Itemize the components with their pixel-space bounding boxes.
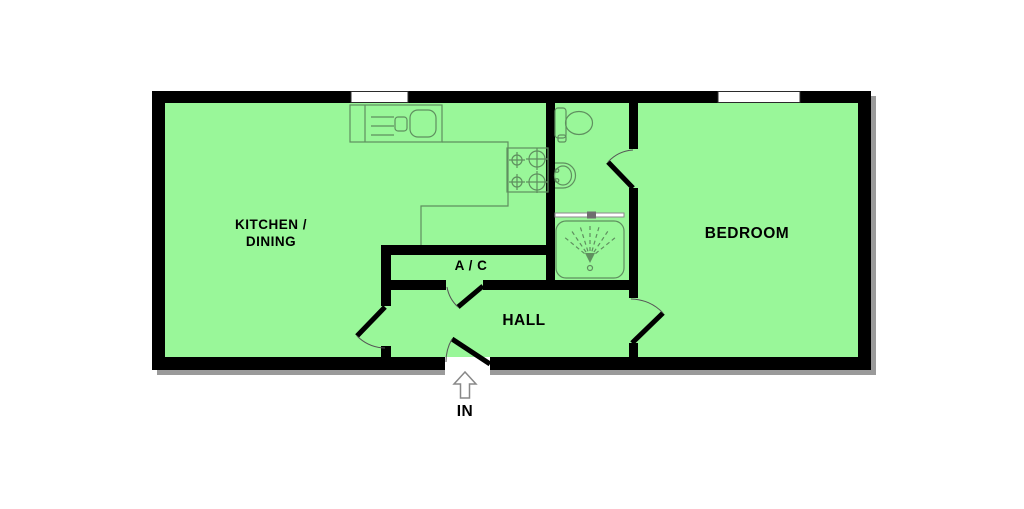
bathroom-bedroom-wall-upper [629, 103, 638, 149]
bathroom-bedroom-wall-stub [629, 343, 638, 357]
ac-closet-top-wall [381, 245, 555, 255]
floorplan-canvas: KITCHEN / DINING A / C HALL BEDROOM IN [0, 0, 1024, 509]
shower-screen-handle [587, 212, 596, 219]
entrance-label: IN [457, 403, 474, 420]
bedroom-label: BEDROOM [705, 225, 789, 242]
ac-closet-label: A / C [455, 258, 488, 273]
kitchen-hall-wall [381, 245, 391, 306]
hall-wall-right-segment [483, 280, 638, 290]
bedroom-window [718, 92, 800, 103]
kitchen-dining-label-line1: KITCHEN / [235, 217, 307, 232]
kitchen-dining-label-line2: DINING [246, 234, 296, 249]
kitchen-window [351, 92, 408, 103]
hall-label: HALL [502, 312, 545, 329]
floorplan-svg: KITCHEN / DINING A / C HALL BEDROOM IN [0, 0, 1024, 509]
kitchen-bathroom-wall [546, 103, 555, 290]
